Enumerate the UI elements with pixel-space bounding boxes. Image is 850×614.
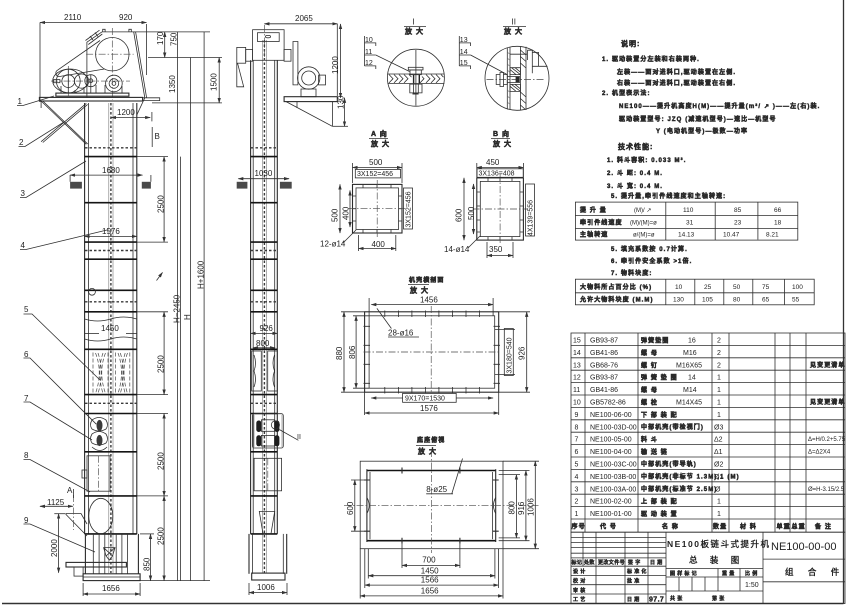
svg-text:Δ1: Δ1 — [714, 449, 723, 456]
svg-text:13: 13 — [573, 362, 581, 369]
svg-text:NE100-00-00: NE100-00-00 — [771, 541, 836, 553]
svg-text:1500: 1500 — [210, 73, 219, 91]
svg-text:说明:: 说明: — [621, 39, 640, 48]
svg-text:NE100-05-00: NE100-05-00 — [590, 437, 632, 444]
svg-text:提 升 量: 提 升 量 — [580, 206, 607, 214]
svg-text:NE100-03B-00: NE100-03B-00 — [590, 474, 636, 481]
svg-text:驱动装置型号: JZQ (减速机型号)—速比—机型号: 驱动装置型号: JZQ (减速机型号)—速比—机型号 — [619, 115, 777, 123]
svg-text:Ø3: Ø3 — [714, 424, 723, 431]
svg-text:GB68-76: GB68-76 — [590, 362, 618, 369]
svg-text:第 张: 第 张 — [712, 595, 725, 602]
svg-text:H: H — [183, 314, 192, 320]
svg-text:螺 母: 螺 母 — [641, 349, 658, 357]
svg-text:大物料所占百分比 (%): 大物料所占百分比 (%) — [580, 283, 652, 291]
svg-text:25: 25 — [704, 284, 712, 291]
svg-text:3X180=540: 3X180=540 — [507, 337, 514, 373]
svg-text:材 料: 材 料 — [739, 523, 757, 531]
svg-text:110: 110 — [683, 207, 694, 214]
svg-text:螺 母: 螺 母 — [641, 386, 658, 394]
svg-text:A 向: A 向 — [371, 129, 388, 138]
svg-text:共 张: 共 张 — [670, 595, 683, 602]
svg-text:3X152=456: 3X152=456 — [406, 191, 413, 227]
svg-text:5: 5 — [24, 305, 29, 314]
svg-text:Ø2: Ø2 — [714, 462, 723, 469]
svg-text:左装——面对进料口,驱动装置在左侧.: 左装——面对进料口,驱动装置在左侧. — [616, 68, 736, 76]
svg-text:4: 4 — [21, 241, 26, 250]
svg-text:标记: 标记 — [571, 559, 583, 566]
svg-text:6: 6 — [575, 449, 579, 456]
svg-text:15: 15 — [460, 60, 468, 67]
svg-text:75: 75 — [762, 284, 770, 291]
svg-text:10.47: 10.47 — [723, 232, 740, 239]
svg-text:14.13: 14.13 — [678, 232, 695, 239]
svg-text:926: 926 — [518, 346, 527, 360]
svg-text:7: 7 — [575, 437, 579, 444]
svg-text:1200: 1200 — [331, 56, 340, 74]
svg-text:螺 钉: 螺 钉 — [641, 361, 658, 369]
svg-text:3: 3 — [575, 486, 579, 493]
svg-text:见变更清单: 见变更清单 — [810, 398, 846, 406]
svg-text:中部机壳(带导轨): 中部机壳(带导轨) — [641, 460, 697, 468]
svg-text:NE100-03C-00: NE100-03C-00 — [590, 462, 637, 469]
svg-text:15: 15 — [573, 338, 581, 345]
svg-text:750: 750 — [169, 32, 178, 46]
svg-text:弹 簧 垫 圈: 弹 簧 垫 圈 — [641, 374, 678, 382]
svg-text:920: 920 — [119, 13, 133, 22]
svg-text:中部机壳(非标节 1.3M),1 (M): 中部机壳(非标节 1.3M),1 (M) — [641, 472, 740, 480]
svg-text:10: 10 — [675, 284, 683, 291]
svg-text:350: 350 — [489, 245, 503, 254]
svg-text:8: 8 — [24, 451, 29, 460]
svg-text:2. 斗 距: 0.4 M.: 2. 斗 距: 0.4 M. — [607, 169, 663, 177]
svg-text:2500: 2500 — [156, 527, 165, 545]
svg-text:28-ø16: 28-ø16 — [388, 329, 414, 338]
svg-text:14: 14 — [688, 375, 696, 382]
svg-text:处数: 处数 — [583, 559, 595, 566]
svg-text:1656: 1656 — [421, 587, 439, 596]
svg-text:2: 2 — [717, 362, 721, 369]
svg-text:I: I — [413, 18, 415, 27]
svg-text:(M)/ ↗: (M)/ ↗ — [634, 208, 651, 214]
svg-text:3X152=456: 3X152=456 — [357, 171, 393, 178]
svg-text:H+1600: H+1600 — [196, 260, 205, 289]
svg-text:M14X45: M14X45 — [676, 400, 702, 407]
svg-text:料 斗: 料 斗 — [641, 436, 658, 444]
svg-text:比 例: 比 例 — [745, 570, 758, 577]
svg-text:5: 5 — [575, 462, 579, 469]
svg-text:1. 驱动装置分左装和右装两种.: 1. 驱动装置分左装和右装两种. — [602, 55, 700, 63]
svg-text:400: 400 — [342, 206, 351, 220]
svg-text:批 准: 批 准 — [627, 578, 640, 585]
svg-text:926: 926 — [260, 324, 274, 333]
svg-text:A: A — [67, 486, 73, 495]
svg-text:Δ2: Δ2 — [714, 437, 723, 444]
svg-text:1680: 1680 — [102, 166, 120, 175]
svg-text:2500: 2500 — [156, 195, 165, 213]
svg-text:600: 600 — [346, 501, 355, 515]
svg-text:1006: 1006 — [257, 583, 275, 592]
svg-text:880: 880 — [335, 346, 344, 360]
svg-text:右装——面对进料口,驱动装置在右侧.: 右装——面对进料口,驱动装置在右侧. — [616, 79, 736, 87]
svg-text:B: B — [155, 132, 160, 141]
svg-text:日 期: 日 期 — [650, 559, 663, 566]
svg-text:130: 130 — [337, 95, 346, 109]
svg-text:上 部 装 配: 上 部 装 配 — [641, 498, 678, 506]
svg-text:见变更清单: 见变更清单 — [810, 361, 846, 369]
svg-text:M14: M14 — [683, 387, 697, 394]
svg-text:1006: 1006 — [526, 498, 535, 516]
svg-text:5. 填充系数按 0.7计算.: 5. 填充系数按 0.7计算. — [611, 245, 688, 253]
svg-text:签 字: 签 字 — [627, 559, 641, 566]
svg-text:II: II — [297, 434, 301, 441]
svg-text:4X139=556: 4X139=556 — [528, 200, 535, 236]
svg-text:1030: 1030 — [255, 169, 273, 178]
svg-text:Δ=H/0.2+5.75: Δ=H/0.2+5.75 — [808, 437, 846, 443]
svg-text:500: 500 — [369, 158, 383, 167]
svg-text:1:50: 1:50 — [745, 582, 759, 589]
svg-text:设 计: 设 计 — [573, 568, 586, 575]
svg-text:Ø: Ø — [715, 486, 721, 493]
svg-text:1: 1 — [18, 97, 23, 106]
svg-text:中部机壳(带检视门): 中部机壳(带检视门) — [641, 423, 704, 431]
svg-text:1: 1 — [717, 400, 721, 407]
svg-text:14-ø14: 14-ø14 — [444, 245, 470, 254]
svg-text:NE100-03D-00: NE100-03D-00 — [590, 424, 637, 431]
svg-text:916: 916 — [517, 501, 526, 515]
svg-text:Y (电动机型号)—极数—功率: Y (电动机型号)—极数—功率 — [656, 127, 748, 135]
svg-text:1: 1 — [717, 387, 721, 394]
svg-text:1. 料斗容积: 0.033 M³.: 1. 料斗容积: 0.033 M³. — [607, 156, 686, 164]
svg-text:NE100——提升机高度H(M)——提升量(m³/ ↗ )—: NE100——提升机高度H(M)——提升量(m³/ ↗ )——左(右)装. — [619, 102, 820, 110]
svg-text:2: 2 — [717, 338, 721, 345]
svg-text:底座俯视: 底座俯视 — [417, 436, 445, 444]
svg-text:400: 400 — [372, 240, 386, 249]
svg-text:800: 800 — [256, 339, 270, 348]
svg-text:130: 130 — [673, 297, 684, 304]
svg-text:GB5782-86: GB5782-86 — [590, 400, 626, 407]
svg-text:2065: 2065 — [295, 14, 313, 23]
svg-text:下 部 装 配: 下 部 装 配 — [641, 411, 678, 419]
svg-text:2000: 2000 — [50, 539, 59, 557]
svg-text:66: 66 — [774, 207, 782, 214]
svg-text:12-ø14: 12-ø14 — [320, 240, 346, 249]
svg-text:单重: 单重 — [777, 523, 791, 531]
svg-text:总重: 总重 — [792, 523, 806, 531]
svg-text:1125: 1125 — [47, 498, 65, 507]
svg-text:NE100-03A-00: NE100-03A-00 — [590, 486, 636, 493]
svg-text:GB41-86: GB41-86 — [590, 350, 618, 357]
svg-text:代 号: 代 号 — [599, 523, 617, 531]
svg-text:85: 85 — [734, 207, 742, 214]
svg-text:NE100-02-00: NE100-02-00 — [590, 499, 632, 506]
svg-text:2500: 2500 — [156, 452, 165, 470]
svg-text:6. 牵引件安全系数 >1倍.: 6. 牵引件安全系数 >1倍. — [611, 257, 692, 265]
svg-text:500: 500 — [331, 208, 340, 222]
svg-text:图 样 标 记: 图 样 标 记 — [670, 570, 697, 577]
svg-text:M16: M16 — [683, 350, 697, 357]
svg-text:放 大: 放 大 — [492, 139, 512, 148]
svg-text:3. 斗 宽: 0.4 M.: 3. 斗 宽: 0.4 M. — [607, 182, 663, 190]
svg-text:技术性能:: 技术性能: — [618, 142, 653, 151]
svg-text:16: 16 — [688, 338, 696, 345]
svg-text:弹簧垫圈: 弹簧垫圈 — [641, 337, 669, 345]
svg-text:1350: 1350 — [168, 75, 177, 93]
svg-text:55: 55 — [792, 297, 800, 304]
svg-text:8-ø25: 8-ø25 — [426, 485, 447, 494]
svg-text:GB93-87: GB93-87 — [590, 375, 618, 382]
svg-text:NE100-04-00: NE100-04-00 — [590, 449, 632, 456]
svg-text:数量: 数量 — [713, 523, 727, 531]
svg-text:9X170=1530: 9X170=1530 — [405, 396, 445, 403]
svg-text:11: 11 — [365, 49, 372, 56]
svg-text:5. 提升量,牵引件线速度和主轴转速:: 5. 提升量,牵引件线速度和主轴转速: — [611, 192, 726, 200]
svg-text:1656: 1656 — [102, 584, 120, 593]
svg-text:806: 806 — [348, 345, 357, 359]
svg-text:23: 23 — [734, 220, 742, 227]
svg-text:1: 1 — [717, 375, 721, 382]
svg-text:螺 栓: 螺 栓 — [641, 399, 658, 407]
svg-text:105: 105 — [702, 297, 713, 304]
svg-text:牵引件线速度: 牵引件线速度 — [580, 219, 623, 227]
svg-text:800: 800 — [507, 501, 516, 515]
svg-text:11: 11 — [573, 387, 580, 394]
svg-text:12: 12 — [573, 375, 581, 382]
svg-text:170: 170 — [156, 31, 165, 45]
svg-text:8: 8 — [575, 424, 579, 431]
svg-text:450: 450 — [486, 158, 500, 167]
svg-text:工 艺: 工 艺 — [573, 596, 586, 603]
svg-text:机壳横剖面: 机壳横剖面 — [409, 276, 445, 284]
svg-text:组 合 件: 组 合 件 — [785, 567, 845, 577]
svg-text:放 大: 放 大 — [404, 27, 424, 36]
svg-text:600: 600 — [455, 208, 464, 222]
svg-text:1: 1 — [717, 499, 721, 506]
svg-text:4: 4 — [575, 474, 579, 481]
svg-text:14: 14 — [573, 350, 581, 357]
svg-text:总 装 图: 总 装 图 — [689, 555, 744, 565]
svg-text:II: II — [512, 18, 516, 27]
svg-text:1450: 1450 — [101, 324, 119, 333]
svg-text:2110: 2110 — [64, 13, 82, 22]
svg-text:重 量: 重 量 — [722, 570, 735, 577]
svg-text:10: 10 — [573, 400, 581, 407]
svg-text:80: 80 — [733, 297, 741, 304]
svg-text:Δ=Δ2X4: Δ=Δ2X4 — [808, 450, 831, 456]
svg-text:输 送 链: 输 送 链 — [641, 448, 668, 456]
svg-text:9: 9 — [575, 412, 579, 419]
svg-text:18: 18 — [774, 220, 782, 227]
svg-text:2: 2 — [575, 499, 579, 506]
svg-text:2500: 2500 — [156, 355, 165, 373]
svg-text:1566: 1566 — [421, 576, 439, 585]
svg-text:1200: 1200 — [117, 108, 135, 117]
svg-text:1: 1 — [717, 511, 721, 518]
svg-text:序号: 序号 — [571, 523, 586, 531]
svg-text:驱 动 装 置: 驱 动 装 置 — [641, 510, 678, 518]
svg-text:中部机壳(标准节 2.5M): 中部机壳(标准节 2.5M) — [641, 485, 717, 493]
svg-text:更改文件号: 更改文件号 — [598, 559, 625, 566]
svg-text:8.21: 8.21 — [766, 232, 779, 239]
svg-text:1: 1 — [717, 412, 721, 419]
svg-text:H−2450: H−2450 — [173, 294, 182, 323]
svg-text:NE100-01-00: NE100-01-00 — [590, 511, 632, 518]
svg-text:50: 50 — [733, 284, 741, 291]
svg-text:3X136=408: 3X136=408 — [479, 171, 515, 178]
svg-text:主轴转速: 主轴转速 — [580, 231, 608, 239]
svg-text:允许大物料块度 (M.M): 允许大物料块度 (M.M) — [579, 296, 654, 304]
svg-text:名 称: 名 称 — [662, 523, 679, 531]
svg-text:13: 13 — [460, 37, 468, 44]
svg-text:2. 机型表示法:: 2. 机型表示法: — [602, 89, 651, 97]
svg-text:NE100板链斗式提升机: NE100板链斗式提升机 — [667, 539, 771, 549]
svg-text:1576: 1576 — [102, 227, 120, 236]
svg-text:NE100-06-00: NE100-06-00 — [590, 412, 632, 419]
svg-text:校 对: 校 对 — [573, 578, 586, 585]
svg-text:Ø=H-3.15/2.5: Ø=H-3.15/2.5 — [808, 487, 845, 493]
svg-text:ø/(M)=ø: ø/(M)=ø — [633, 233, 655, 239]
svg-text:1456: 1456 — [420, 296, 438, 305]
svg-text:2: 2 — [717, 350, 721, 357]
svg-text:(M)/(M)=ø: (M)/(M)=ø — [630, 221, 657, 227]
svg-text:GB93-87: GB93-87 — [590, 338, 618, 345]
svg-text:Ø1: Ø1 — [714, 474, 723, 481]
svg-text:500: 500 — [467, 206, 476, 220]
svg-text:31: 31 — [686, 220, 694, 227]
svg-text:7. 物料块度:: 7. 物料块度: — [611, 269, 652, 277]
svg-text:2: 2 — [19, 138, 24, 147]
svg-text:审 核: 审 核 — [573, 587, 586, 594]
svg-text:97.7: 97.7 — [649, 597, 664, 604]
svg-text:3: 3 — [21, 189, 26, 198]
svg-text:65: 65 — [762, 297, 770, 304]
svg-text:M16X65: M16X65 — [676, 362, 702, 369]
svg-text:放 大: 放 大 — [409, 286, 429, 295]
svg-text:放 大: 放 大 — [503, 27, 523, 36]
svg-text:GB41-86: GB41-86 — [590, 387, 618, 394]
svg-text:12: 12 — [365, 60, 373, 67]
svg-text:日 期: 日 期 — [627, 596, 640, 603]
svg-text:100: 100 — [792, 284, 803, 291]
svg-text:1: 1 — [575, 511, 579, 518]
svg-text:B 向: B 向 — [493, 129, 510, 138]
svg-text:放 大: 放 大 — [370, 139, 390, 148]
svg-text:14: 14 — [460, 49, 468, 56]
svg-text:700: 700 — [422, 556, 436, 565]
svg-text:备 注: 备 注 — [814, 523, 832, 531]
svg-text:标 准 化: 标 准 化 — [626, 568, 647, 575]
svg-text:10: 10 — [365, 37, 373, 44]
svg-text:放 大: 放 大 — [417, 447, 437, 456]
svg-text:1450: 1450 — [421, 566, 439, 575]
svg-text:1576: 1576 — [420, 404, 438, 413]
